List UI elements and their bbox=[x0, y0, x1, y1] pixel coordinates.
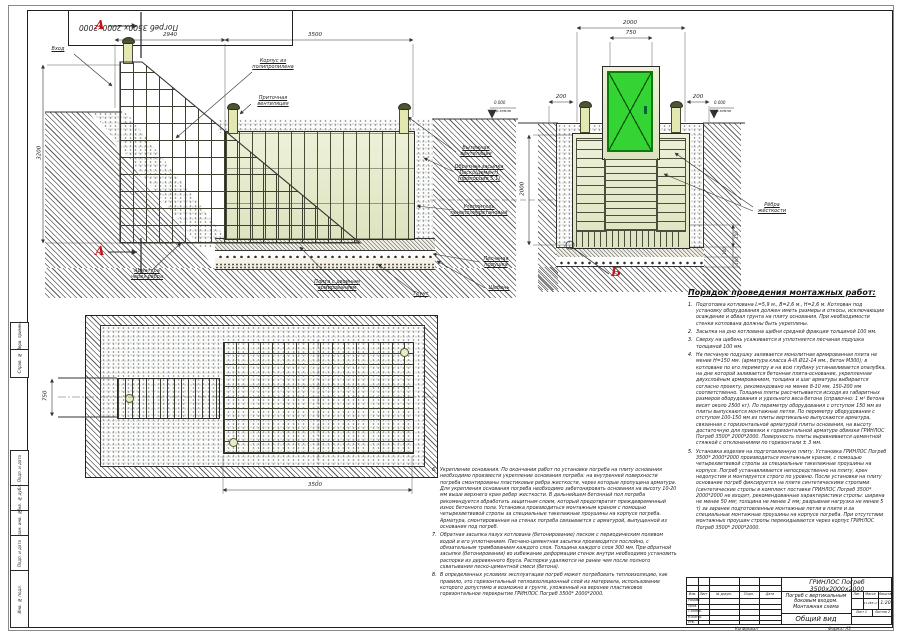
dim-100a: 100 bbox=[723, 243, 727, 259]
ventB-left bbox=[580, 105, 590, 133]
tb-mass-value: 11.285 кг bbox=[863, 602, 878, 605]
tb-r-check: Пров. bbox=[688, 605, 709, 609]
dim-750-b: 750 bbox=[611, 31, 651, 37]
rebar-layerB bbox=[556, 257, 704, 267]
label-rebar: Арматура через рёбра bbox=[126, 268, 168, 280]
margin-box-vzam-inv: Взам. инв. № bbox=[10, 510, 29, 537]
tb-h-doc: № докум. bbox=[709, 593, 739, 597]
dim-2000-b: 2000 bbox=[610, 21, 650, 27]
soil-hatch-right bbox=[432, 119, 516, 268]
mounting-item: 2.Засыпка на дно котлована щебня средней… bbox=[688, 330, 888, 336]
soilB-left bbox=[538, 123, 558, 290]
label-sand: Песчаная подушка bbox=[474, 256, 518, 268]
dim-3200: 3200 bbox=[37, 139, 43, 167]
dim-200-right: 200 bbox=[686, 95, 710, 101]
dim-2000-a: 2000 bbox=[520, 175, 526, 203]
drawing-sheet: Погреб 3500х 2000х2000 bbox=[0, 0, 900, 636]
format-label: Формат А3 bbox=[828, 627, 851, 631]
margin-box-podp-data-2: Подп. и дата bbox=[10, 535, 29, 572]
tb-h-izm: Изм. bbox=[687, 593, 698, 597]
dim-3500-plan: 3500 bbox=[295, 483, 335, 489]
tb-r-dev: Разраб. bbox=[688, 599, 709, 603]
ventB-right bbox=[671, 105, 681, 133]
dim-200-left: 200 bbox=[549, 95, 573, 101]
tb-h-mass: Масса bbox=[863, 593, 878, 597]
margin-box-inv-dubl: Инв. № дубл. bbox=[10, 485, 29, 512]
bodyB-floor-ribs bbox=[576, 230, 684, 247]
tb-r-approve: Утв. bbox=[688, 621, 709, 625]
label-slab: Плита с двойным армированием bbox=[305, 279, 369, 291]
tb-view: Общий вид bbox=[781, 616, 851, 624]
elevB-ref: ур.земли bbox=[714, 110, 736, 114]
tb-description: Погреб с вертикальным боковым входом. Мо… bbox=[783, 594, 849, 612]
copied-label: Копировал bbox=[735, 627, 758, 631]
mounting-item: 5.Установка изделия на подготовленную пл… bbox=[688, 450, 888, 532]
label-soil: Грунт bbox=[406, 291, 436, 297]
tb-h-sign: Подп. bbox=[739, 593, 759, 597]
label-body: Корпус из полипропилена bbox=[242, 58, 304, 70]
mounting-item: 4.На песчаную подушку заливается монолит… bbox=[688, 353, 888, 448]
title-block: ГРИНЛОС Погреб 3500х2000х2000 Изм. Лист … bbox=[686, 577, 892, 625]
plan-body bbox=[223, 342, 414, 454]
tb-r-ncontr: Н.контр. bbox=[688, 616, 709, 620]
mounting-title: Порядок проведения монтажных работ: bbox=[688, 288, 888, 298]
foundation-notes: 6.Укрепление основания. По окончании раб… bbox=[432, 468, 678, 601]
elevA-value: 0.000 bbox=[494, 101, 518, 105]
margin-box-sprav: Справ. № bbox=[10, 349, 29, 378]
label-insulation: Утеплитель пенополиуретановый bbox=[448, 204, 510, 216]
door-handle bbox=[644, 106, 647, 114]
mounting-instructions: Порядок проведения монтажных работ: 1.По… bbox=[688, 288, 888, 534]
section-marker-A-top: А bbox=[95, 19, 105, 31]
tb-sheets: Листов 2 bbox=[872, 611, 893, 615]
mounting-item: 1.Подготовка котлована L=5,9 м., В=2,6 м… bbox=[688, 303, 888, 328]
margin-box-inv-podl: Инв. № подл. bbox=[10, 570, 29, 628]
label-supply-vent: Приточная вентиляция bbox=[248, 95, 298, 107]
vent-pipe-entrance bbox=[123, 41, 133, 64]
note-item: 7.Обратная засыпка пазух котлована (бето… bbox=[432, 533, 678, 571]
dim-2940: 2940 bbox=[150, 33, 190, 39]
gravel-layer bbox=[215, 263, 435, 270]
label-backfill: Обратная засыпка Песко(цемент) (пропорци… bbox=[450, 164, 508, 182]
tb-h-list: Лист bbox=[698, 593, 709, 597]
mounting-item: 3.Сверху на щебень усаживается и уплотня… bbox=[688, 338, 888, 351]
label-gravel: Щебень bbox=[482, 285, 516, 291]
note-item: 8.В определенных условиях эксплуатации п… bbox=[432, 573, 678, 598]
vent-pipe-supply bbox=[228, 107, 238, 134]
tb-h-scale: Масштаб bbox=[878, 593, 893, 597]
dim-3500-a: 3500 bbox=[295, 33, 335, 39]
dim-100b: 100 bbox=[735, 253, 739, 269]
note-item: 6.Укрепление основания. По окончании раб… bbox=[432, 468, 678, 531]
ladder bbox=[604, 158, 658, 230]
elevB-value: 0.000 bbox=[714, 101, 736, 105]
tb-h-lit: Лит. bbox=[851, 593, 863, 597]
dim-750-plan: 750 bbox=[43, 382, 49, 410]
margin-box-podp-data-1: Подп. и дата bbox=[10, 450, 29, 487]
tb-sheet: Лист 1 bbox=[851, 611, 872, 615]
section-marker-A-bottom: А bbox=[95, 245, 105, 257]
margin-box-perv-primen: Перв. примен. bbox=[10, 322, 29, 351]
tb-scale-value: 1:20 bbox=[878, 601, 893, 606]
plan-vent-2 bbox=[400, 348, 409, 357]
bodyB-right-wall bbox=[656, 138, 686, 232]
elevA-ref: ур.земли bbox=[494, 110, 518, 114]
label-entry: Вход bbox=[42, 46, 74, 52]
vent-pipe-exhaust bbox=[399, 107, 409, 134]
label-exhaust-vent: Вытяжная вентиляция bbox=[452, 145, 500, 157]
tb-r-tcontr: Т.контр. bbox=[688, 610, 709, 614]
plan-vent-3 bbox=[229, 438, 238, 447]
label-ribs: Рёбра жёсткости bbox=[750, 202, 794, 214]
soil-hatch-bottom bbox=[45, 268, 516, 298]
section-marker-B: Б bbox=[611, 266, 621, 278]
dim-150: 150 bbox=[735, 227, 739, 243]
tb-h-date: Дата bbox=[759, 593, 781, 597]
plan-vent-1 bbox=[125, 394, 134, 403]
